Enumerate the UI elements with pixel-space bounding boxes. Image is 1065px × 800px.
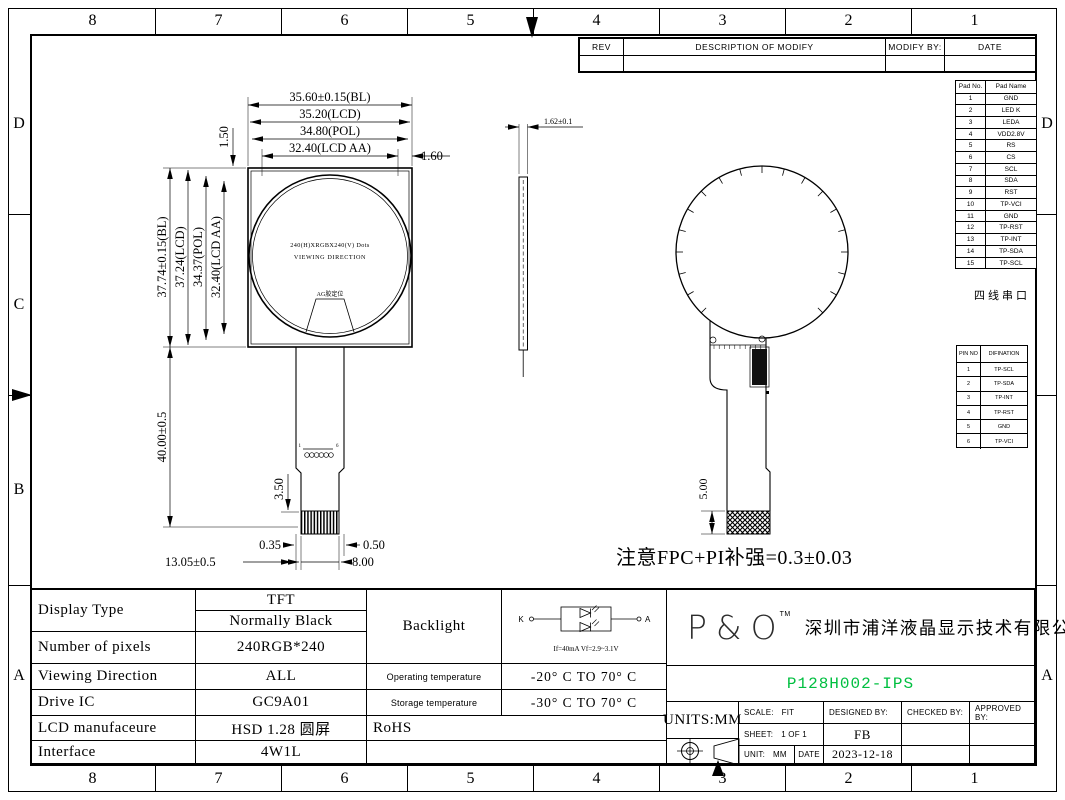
- spec-table: Display Type TFT Normally Black Number o…: [30, 588, 1037, 766]
- revision-table: REV DESCRIPTION OF MODIFY MODIFY BY: DAT…: [578, 37, 1037, 73]
- pad-table-row: 5RS: [956, 140, 1036, 152]
- pad-table-row: 3LEDA: [956, 117, 1036, 129]
- company-name: 深圳市浦洋液晶显示技术有限公司: [805, 615, 1065, 640]
- dim-height-pol: 34.37(POL): [191, 227, 205, 287]
- rev-col-header: REV: [580, 39, 624, 55]
- approved-by-cell: APPROVED BY:: [970, 702, 1035, 724]
- pad-name-header: Pad Name: [986, 81, 1036, 93]
- display-type-label: Display Type: [32, 590, 196, 632]
- back-view: 5.00: [676, 166, 848, 534]
- approved-value-cell: [970, 724, 1035, 746]
- date-value-cell: 2023-12-18: [824, 746, 902, 764]
- backlight-circuit-cell: [502, 590, 667, 664]
- pad-table-row: 14TP-SDA: [956, 246, 1036, 258]
- dim-thickness: 1.62±0.1: [544, 117, 572, 126]
- front-center-line1: 240(H)XRGBX240(V) Dots: [290, 242, 370, 249]
- company-logo-cell: P&OTM 深圳市浦洋液晶显示技术有限公司: [667, 590, 1035, 666]
- description-empty-cell: [624, 56, 886, 73]
- drive-ic-value: GC9A01: [196, 690, 367, 716]
- dim-edge-top: 1.50: [217, 126, 231, 148]
- front-center-line2: VIEWING DIRECTION: [294, 254, 366, 261]
- ag-glue-label: AG胶定位: [317, 290, 344, 298]
- designed-by-cell: DESIGNED BY:: [824, 702, 902, 724]
- checked-value-cell: [902, 724, 970, 746]
- touch-pin-table: PIN NODIFINATION 1TP-SCL 2TP-SDA 3TP-INT…: [956, 345, 1028, 448]
- dim-offset-left: 0.35: [259, 538, 281, 552]
- pin-table-row: 5GND: [957, 420, 1027, 434]
- dim-width-bl: 35.60±0.15(BL): [289, 90, 370, 104]
- pad-tick-marks: [676, 166, 848, 313]
- storage-temp-value: -30° C TO 70° C: [502, 690, 667, 716]
- modify-by-empty-cell: [886, 56, 945, 73]
- connector-footprint: [303, 449, 333, 457]
- pad-table-row: 4VDD2.8V: [956, 129, 1036, 141]
- description-col-header: DESCRIPTION OF MODIFY: [624, 39, 886, 55]
- operating-temp-value: -20° C TO 70° C: [502, 664, 667, 690]
- interface-label: Interface: [32, 741, 196, 764]
- pin-first-label: 1: [299, 444, 302, 449]
- backlight-label: Backlight: [367, 590, 502, 664]
- dim-contact-height: 3.50: [272, 478, 286, 500]
- viewing-direction-label: Viewing Direction: [32, 664, 196, 690]
- display-type-value-2: Normally Black: [196, 611, 367, 632]
- tp-connector: [752, 349, 767, 385]
- pin-table-row: 3TP-INT: [957, 392, 1027, 406]
- dim-width-aa: 32.40(LCD AA): [289, 141, 371, 155]
- designed-value-cell: FB: [824, 724, 902, 746]
- dim-edge-right: 1.60: [421, 149, 443, 163]
- side-view: 1.62±0.1: [505, 117, 583, 377]
- pixels-value: 240RGB*240: [196, 632, 367, 664]
- storage-temp-label: Storage temperature: [367, 690, 502, 716]
- pad-table-row: 10TP-VCI: [956, 199, 1036, 211]
- interface-value: 4W1L: [196, 741, 367, 764]
- dim-height-lcd: 37.24(LCD): [173, 226, 187, 287]
- pin-table-row: 1TP-SCL: [957, 363, 1027, 377]
- checked-date-cell: [902, 746, 970, 764]
- projection-symbol-cell: [667, 739, 739, 764]
- dim-contact-width: 8.00: [352, 555, 374, 569]
- fpc-stiffener: [727, 511, 770, 534]
- drive-ic-label: Drive IC: [32, 690, 196, 716]
- rev-empty-cell: [580, 56, 624, 73]
- scale-cell: SCALE:FIT: [739, 702, 824, 724]
- date-col-header: DATE: [945, 39, 1035, 55]
- dim-contact-pos: 13.05±0.5: [165, 555, 216, 569]
- dim-stiffener: 5.00: [696, 479, 710, 500]
- pad-table-row: 1GND: [956, 94, 1036, 106]
- operating-temp-label: Operating temperature: [367, 664, 502, 690]
- pad-no-header: Pad No.: [956, 81, 986, 93]
- modify-by-col-header: MODIFY BY:: [886, 39, 945, 55]
- part-number-cell: P128H002-IPS: [667, 666, 1035, 702]
- dim-height-bl: 37.74±0.15(BL): [155, 216, 169, 297]
- dim-height-aa: 32.40(LCD AA): [209, 216, 223, 298]
- pad-table-row: 11GND: [956, 211, 1036, 223]
- pin-def-header: DIFINATION: [981, 346, 1027, 362]
- units-cell: UNITS:MM: [667, 702, 739, 739]
- engineering-drawing-sheet: 8 7 6 5 4 3 2 1 8 7 6 5 4 3 2 1 D C B A …: [0, 0, 1065, 800]
- pin-last-label: 6: [336, 444, 339, 449]
- unit-cell: UNIT:MM: [739, 746, 795, 764]
- pin-table-row: 2TP-SDA: [957, 377, 1027, 391]
- front-view-dimensions: 35.60±0.15(BL) 35.20(LCD) 34.80(POL) 32.…: [155, 90, 450, 570]
- rohs-label: RoHS: [367, 716, 667, 741]
- pad-table-row: 6CS: [956, 152, 1036, 164]
- part-number: P128H002-IPS: [787, 675, 914, 693]
- pin-no-header: PIN NO: [957, 346, 981, 362]
- pixels-label: Number of pixels: [32, 632, 196, 664]
- manufacture-value: HSD 1.28 圆屏: [196, 716, 367, 741]
- dim-width-pol: 34.80(POL): [300, 124, 360, 138]
- pad-table-row: 8SDA: [956, 176, 1036, 188]
- pin-table-row: 6TP-VCI: [957, 434, 1027, 448]
- pad-table-row: 2LED K: [956, 105, 1036, 117]
- serial-interface-caption: 四线串口: [960, 287, 1044, 303]
- pad-table: Pad No.Pad Name 1GND 2LED K 3LEDA 4VDD2.…: [955, 80, 1037, 269]
- date-empty-cell: [945, 56, 1035, 73]
- display-type-value-1: TFT: [196, 590, 367, 611]
- po-logo: P&O: [687, 608, 786, 647]
- manufacture-label: LCD manufaceure: [32, 716, 196, 741]
- approved-date-cell: [970, 746, 1035, 764]
- pad-table-row: 13TP-INT: [956, 234, 1036, 246]
- spec-empty-cell: [367, 741, 667, 764]
- dim-width-lcd: 35.20(LCD): [299, 107, 360, 121]
- pin-table-row: 4TP-RST: [957, 406, 1027, 420]
- viewing-direction-value: ALL: [196, 664, 367, 690]
- pad-table-row: 15TP-SCL: [956, 258, 1036, 270]
- date-label-cell: DATE: [795, 746, 824, 764]
- fpc-stiffener-note: 注意FPC+PI补强=0.3±0.03: [616, 541, 852, 570]
- pad-table-row: 7SCL: [956, 164, 1036, 176]
- pad-table-row: 9RST: [956, 187, 1036, 199]
- dim-fpc-length: 40.00±0.5: [155, 412, 169, 463]
- dim-offset-right: 0.50: [363, 538, 385, 552]
- checked-by-cell: CHECKED BY:: [902, 702, 970, 724]
- pad-table-row: 12TP-RST: [956, 222, 1036, 234]
- sheet-cell: SHEET:1 OF 1: [739, 724, 824, 746]
- trademark-symbol: TM: [780, 611, 791, 618]
